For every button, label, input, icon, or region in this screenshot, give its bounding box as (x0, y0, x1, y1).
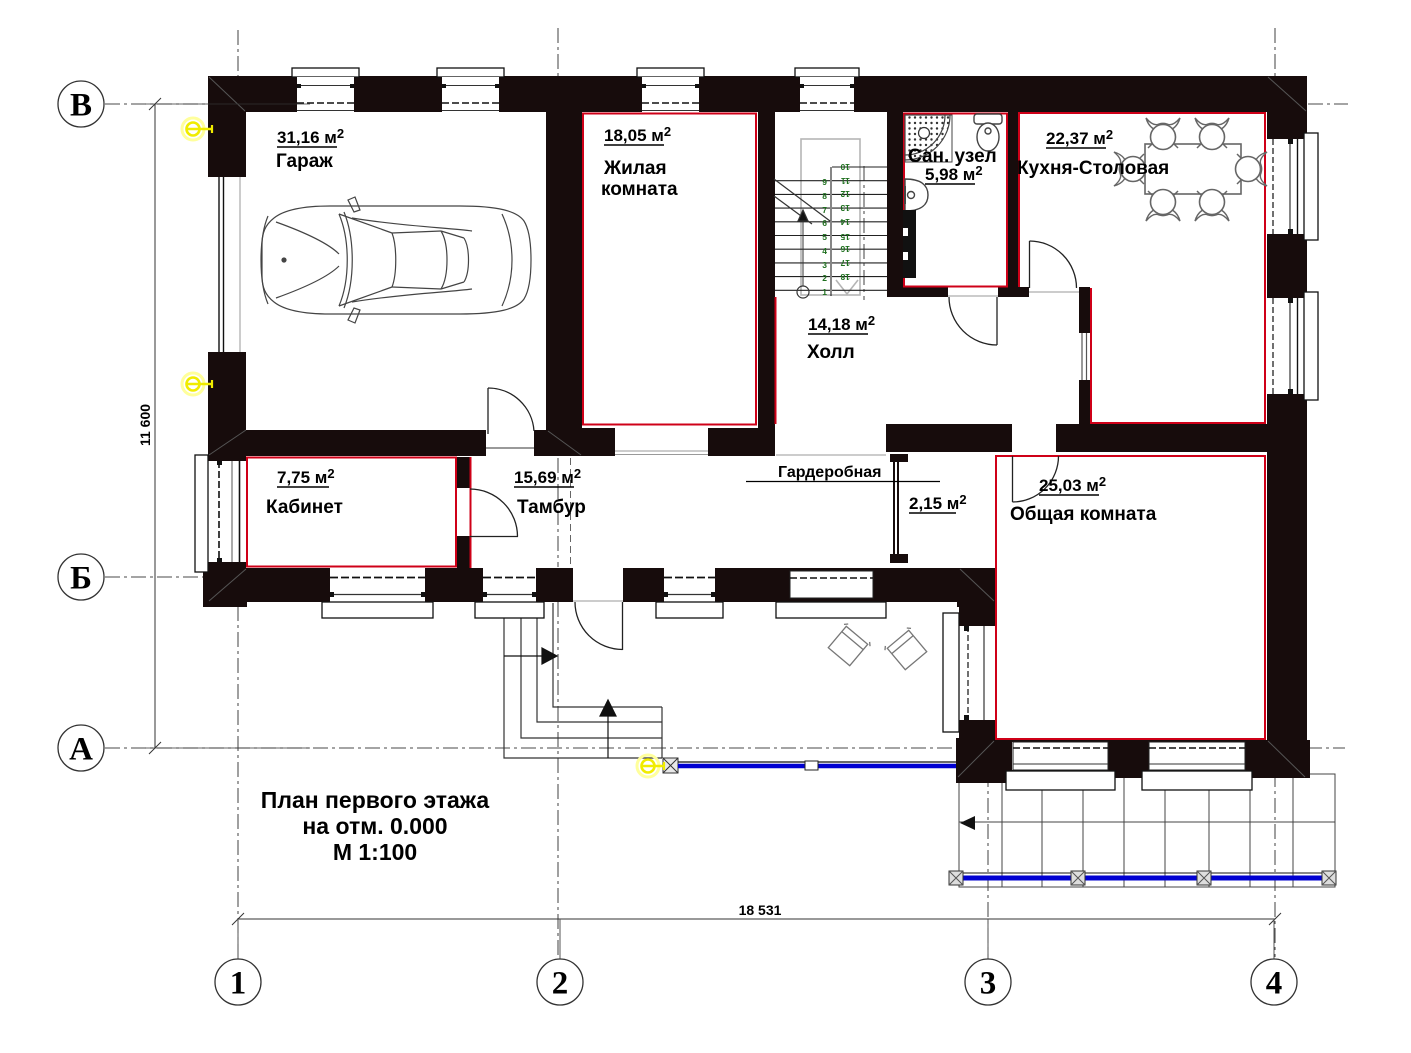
svg-text:31,16 м2: 31,16 м2 (277, 126, 344, 147)
svg-text:15,69 м2: 15,69 м2 (514, 466, 581, 487)
svg-text:4: 4 (1266, 966, 1283, 1002)
svg-text:11: 11 (841, 176, 850, 186)
svg-text:Тамбур: Тамбур (517, 497, 586, 518)
svg-text:Кухня-Столовая: Кухня-Столовая (1017, 158, 1169, 179)
svg-text:Кабинет: Кабинет (266, 497, 343, 518)
svg-text:План первого этажа: План первого этажа (261, 787, 490, 813)
svg-text:3: 3 (980, 966, 997, 1002)
svg-text:9: 9 (822, 177, 827, 187)
svg-text:Общая комната: Общая комната (1010, 504, 1157, 525)
svg-text:Б: Б (70, 561, 92, 597)
svg-text:18: 18 (840, 272, 850, 282)
svg-text:17: 17 (840, 258, 850, 268)
svg-text:Холл: Холл (807, 342, 855, 363)
svg-text:Сан. узел: Сан. узел (908, 146, 997, 167)
svg-text:12: 12 (840, 189, 850, 199)
svg-text:11 600: 11 600 (137, 404, 153, 446)
svg-text:5: 5 (822, 232, 827, 242)
svg-text:Жилая: Жилая (603, 158, 667, 179)
svg-text:1: 1 (230, 966, 247, 1002)
svg-text:2: 2 (552, 966, 569, 1002)
svg-text:на отм. 0.000: на отм. 0.000 (302, 813, 447, 839)
svg-text:М 1:100: М 1:100 (333, 839, 417, 865)
svg-text:14,18 м2: 14,18 м2 (808, 313, 875, 334)
svg-text:2,15 м2: 2,15 м2 (909, 492, 967, 513)
svg-text:15: 15 (840, 232, 850, 242)
svg-text:комната: комната (601, 179, 678, 200)
svg-text:Гараж: Гараж (276, 151, 333, 172)
svg-text:Гардеробная: Гардеробная (778, 464, 882, 481)
svg-text:18,05 м2: 18,05 м2 (604, 124, 671, 145)
svg-text:13: 13 (840, 203, 850, 213)
svg-text:3: 3 (822, 260, 827, 270)
svg-text:5,98 м2: 5,98 м2 (925, 163, 983, 184)
svg-text:14: 14 (840, 217, 850, 227)
svg-text:2: 2 (822, 273, 827, 283)
svg-text:А: А (69, 732, 93, 768)
svg-text:18 531: 18 531 (739, 902, 782, 918)
svg-text:7: 7 (822, 205, 827, 215)
svg-text:8: 8 (822, 191, 827, 201)
svg-text:6: 6 (822, 218, 827, 228)
svg-text:25,03 м2: 25,03 м2 (1039, 474, 1106, 495)
svg-text:В: В (70, 88, 92, 124)
svg-text:22,37 м2: 22,37 м2 (1046, 127, 1113, 148)
svg-text:1: 1 (822, 287, 827, 297)
svg-text:16: 16 (840, 244, 850, 254)
svg-text:10: 10 (840, 162, 850, 172)
svg-text:7,75 м2: 7,75 м2 (277, 466, 335, 487)
svg-text:4: 4 (822, 246, 827, 256)
